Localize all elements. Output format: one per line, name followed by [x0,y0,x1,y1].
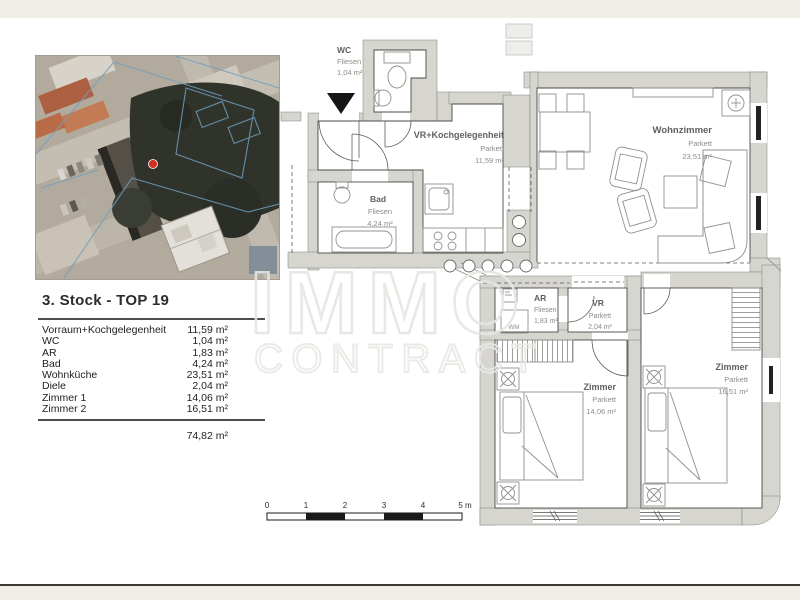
room-label-zimmer2-floor: Parkett [724,375,749,384]
scale-tick: 0 [265,501,270,510]
room-label-ar-area: 1,83 m² [534,318,558,325]
room-label-vrkoch-name: VR+Kochgelegenheit [414,130,504,140]
scale-tick: 3 [382,501,387,510]
room-label-bad-area: 4,24 m² [367,219,393,228]
room-label-zimmer2-name: Zimmer [715,362,748,372]
room-label-zimmer2-area: 16,51 m² [718,387,748,396]
room-label-vr-area: 2,04 m² [588,324,612,331]
room-label-wohnzimmer-area: 23,51 m² [682,152,712,161]
room-label-wc-area: 1,04 m² [337,68,363,77]
room-label-bad-name: Bad [370,194,386,204]
wardrobe [732,288,760,350]
room-label-zimmer1-area: 14,06 m² [586,407,616,416]
room-label-wohnzimmer-floor: Parkett [688,139,713,148]
page-margin-bottom [0,584,800,600]
room-label-vr-floor: Parkett [589,313,611,320]
watermark-line2: CONTRACT [254,337,544,381]
floor-plan: WC Fliesen 1,04 m² VR+Kochgelegenheit Pa… [0,0,800,600]
entrance-arrow-icon [327,93,355,114]
room-label-vrkoch-floor: Parkett [480,144,505,153]
room-label-vr-name: VR [592,298,604,308]
document-page: 3. Stock - TOP 19 Vorraum+Kochgelegenhei… [0,0,800,600]
room-label-wc-name: WC [337,45,351,55]
scale-tick: 5 m [458,501,472,510]
room-label-ar-name: AR [534,293,546,303]
room-label-vrkoch-area: 11,59 m² [475,156,505,165]
adjacent-structure [506,24,532,55]
room-label-bad-floor: Fliesen [368,207,392,216]
scale-tick: 4 [421,501,426,510]
scale-tick: 1 [304,501,309,510]
scale-tick: 2 [343,501,348,510]
scale-bar: 0 1 2 3 4 5 m [265,501,472,520]
room-label-zimmer1-name: Zimmer [583,382,616,392]
room-label-wc-floor: Fliesen [337,57,361,66]
watermark: IMMO CONTRACT [250,253,544,381]
room-label-zimmer1-floor: Parkett [592,395,617,404]
room-label-wohnzimmer-name: Wohnzimmer [653,125,713,136]
room-label-ar-floor: Fliesen [534,307,557,314]
